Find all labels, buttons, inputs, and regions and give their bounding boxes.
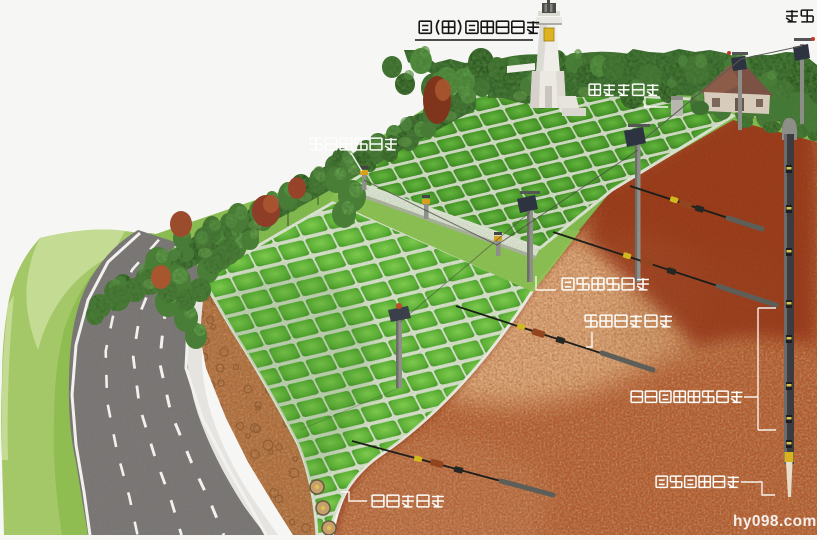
svg-text:hy098.com: hy098.com: [733, 513, 817, 530]
